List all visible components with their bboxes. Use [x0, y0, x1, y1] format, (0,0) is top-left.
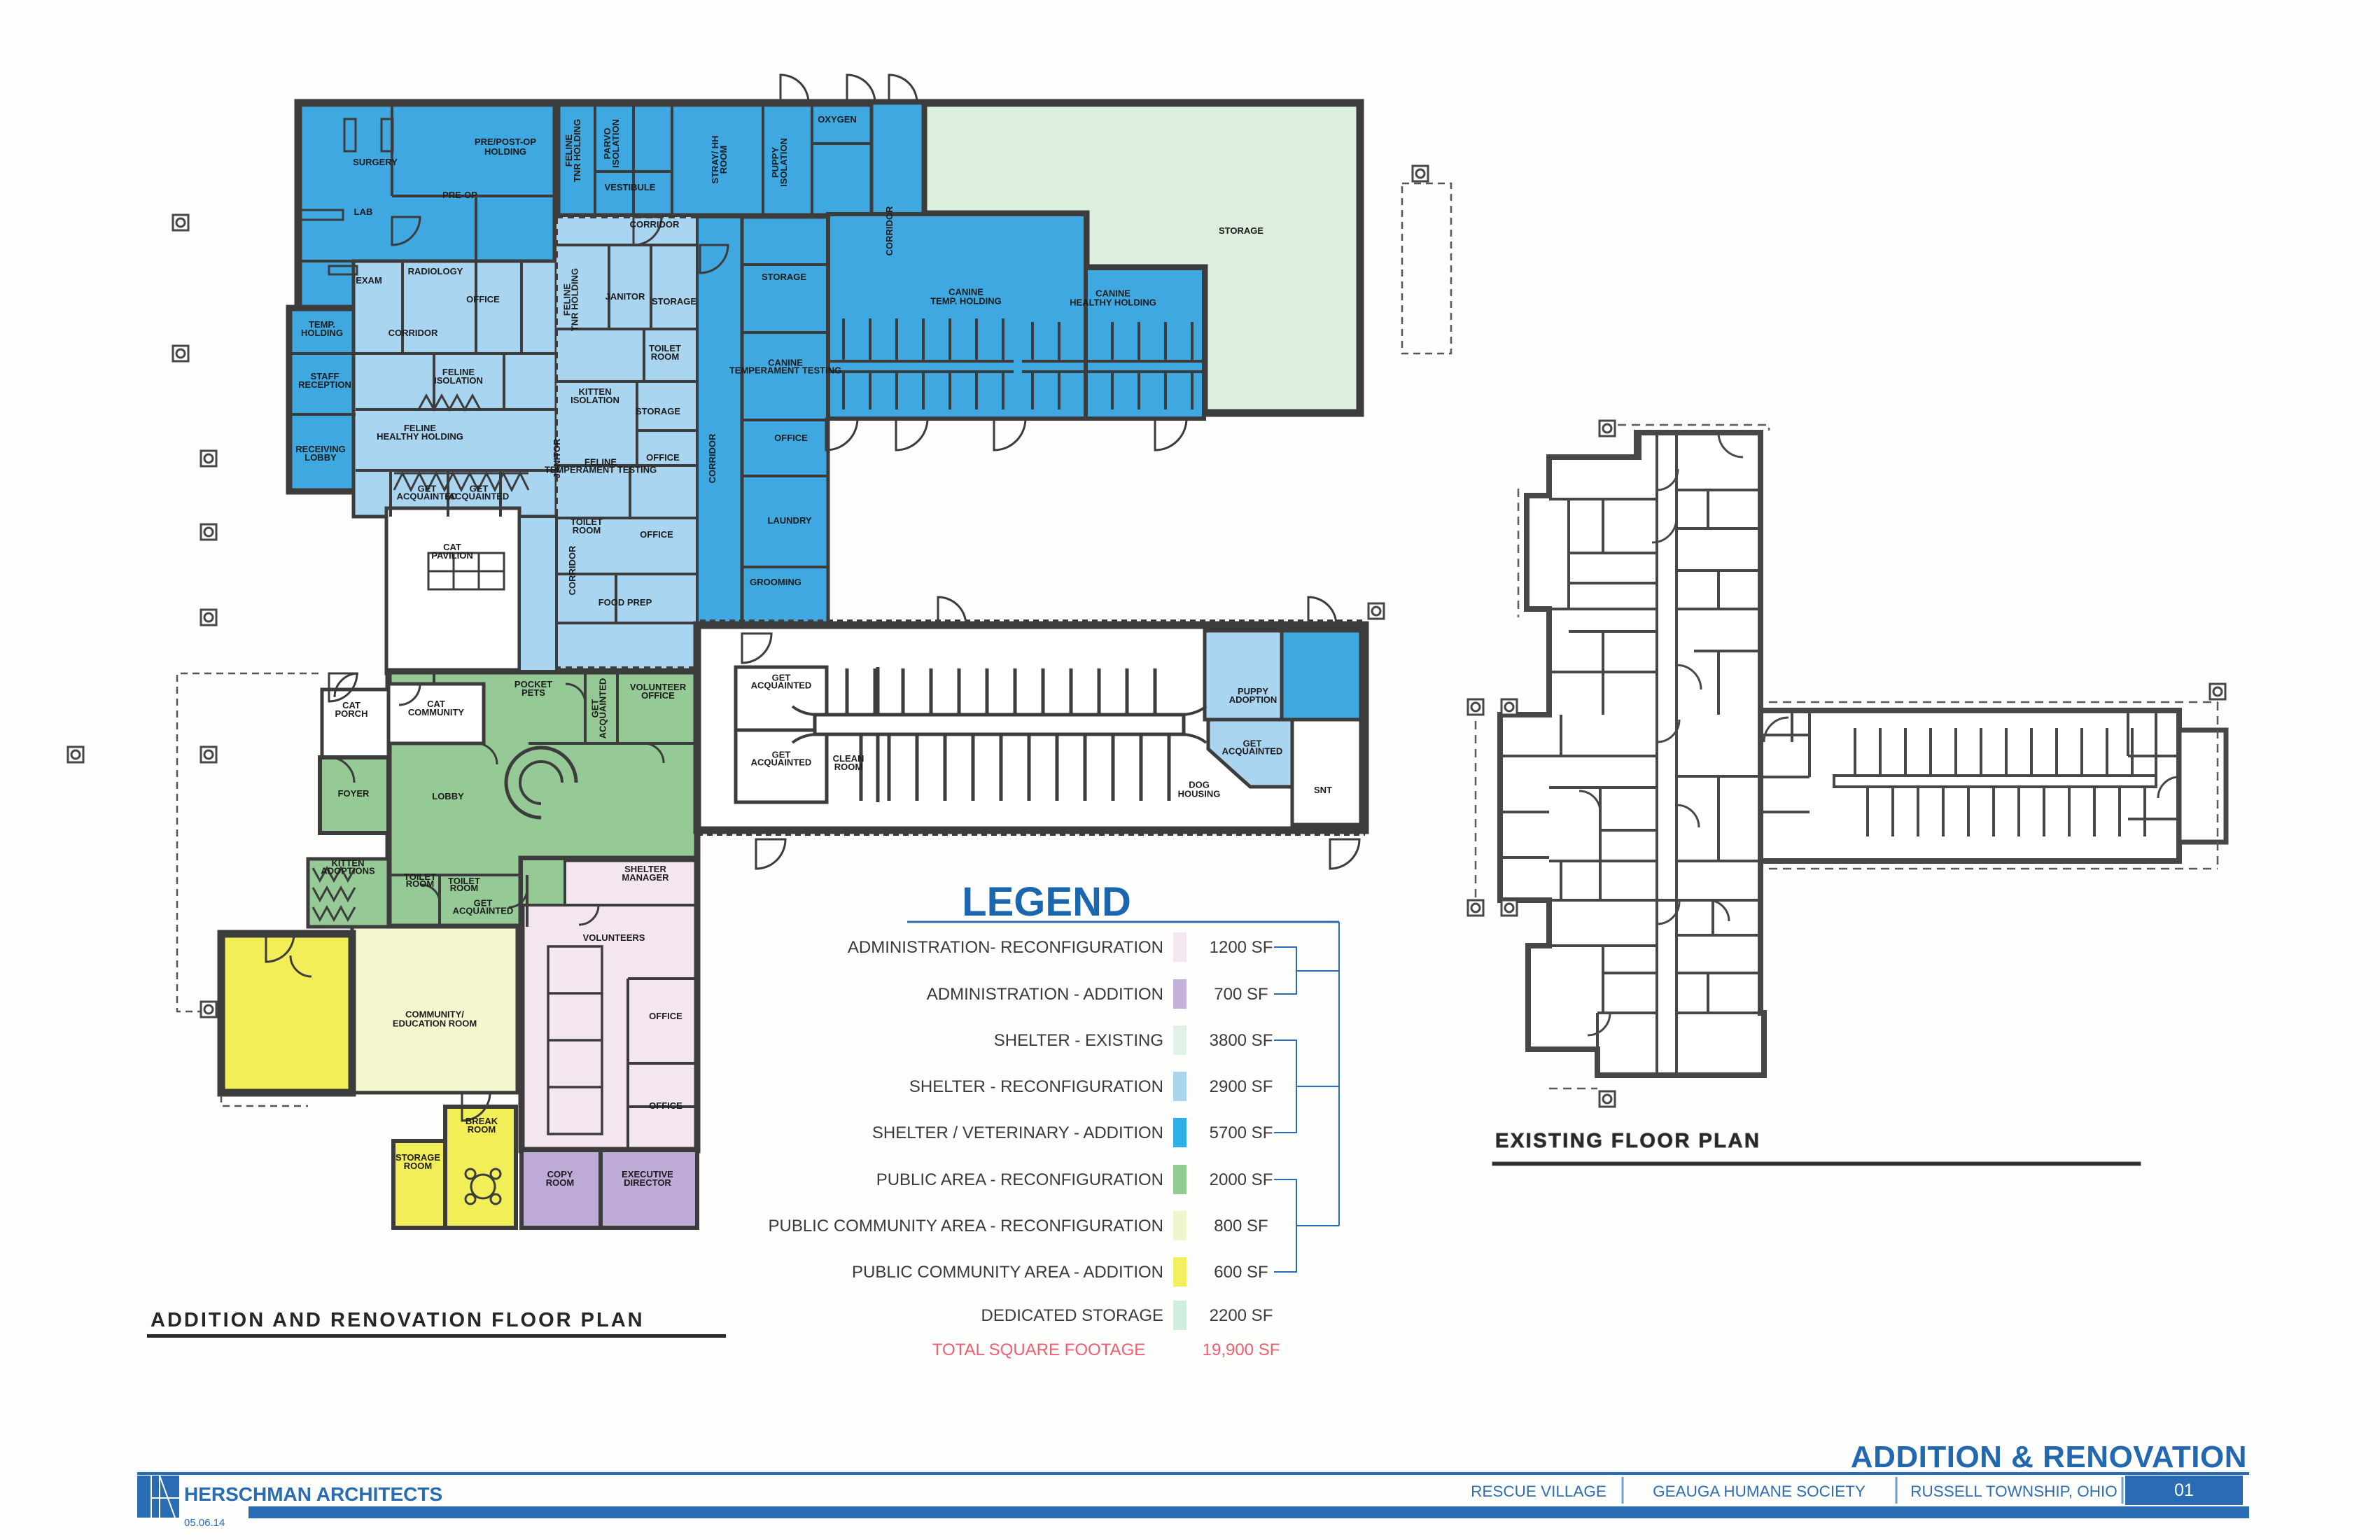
- svg-text:EXAM: EXAM: [356, 275, 382, 286]
- svg-text:STORAGE: STORAGE: [762, 272, 806, 282]
- svg-text:PUBLIC COMMUNITY AREA - RECONF: PUBLIC COMMUNITY AREA - RECONFIGURATION: [768, 1217, 1163, 1235]
- svg-text:STORAGE: STORAGE: [652, 296, 696, 307]
- svg-text:CORRIDOR: CORRIDOR: [567, 545, 577, 595]
- svg-text:LOBBY: LOBBY: [432, 791, 464, 801]
- svg-text:2900 SF: 2900 SF: [1210, 1077, 1273, 1096]
- svg-text:EXECUTIVEDIRECTOR: EXECUTIVEDIRECTOR: [622, 1169, 673, 1188]
- svg-text:JANITOR: JANITOR: [605, 291, 645, 302]
- svg-text:OFFICE: OFFICE: [649, 1011, 682, 1021]
- svg-text:OFFICE: OFFICE: [466, 294, 500, 304]
- svg-text:SHELTER - RECONFIGURATION: SHELTER - RECONFIGURATION: [909, 1077, 1163, 1096]
- svg-text:GEAUGA HUMANE SOCIETY: GEAUGA HUMANE SOCIETY: [1653, 1483, 1865, 1500]
- svg-text:LAB: LAB: [354, 206, 373, 217]
- svg-text:LAUNDRY: LAUNDRY: [767, 515, 811, 526]
- svg-text:OFFICE: OFFICE: [646, 452, 680, 463]
- svg-text:VESTIBULE: VESTIBULE: [605, 182, 656, 192]
- svg-text:800 SF: 800 SF: [1214, 1217, 1268, 1235]
- svg-text:SHELTERMANAGER: SHELTERMANAGER: [622, 864, 669, 883]
- svg-text:PUBLIC COMMUNITY AREA - ADDITI: PUBLIC COMMUNITY AREA - ADDITION: [852, 1263, 1163, 1282]
- svg-text:CORRIDOR: CORRIDOR: [388, 328, 438, 338]
- svg-text:FOYER: FOYER: [338, 788, 370, 799]
- svg-text:600 SF: 600 SF: [1214, 1263, 1268, 1282]
- svg-text:TOILETROOM: TOILETROOM: [570, 517, 603, 535]
- svg-text:3800 SF: 3800 SF: [1210, 1031, 1273, 1050]
- svg-text:SHELTER / VETERINARY - ADDITIO: SHELTER / VETERINARY - ADDITION: [872, 1123, 1163, 1142]
- svg-text:RADIOLOGY: RADIOLOGY: [408, 266, 463, 276]
- svg-text:OFFICE: OFFICE: [640, 529, 673, 540]
- svg-text:01: 01: [2174, 1480, 2194, 1500]
- svg-text:19,900 SF: 19,900 SF: [1203, 1340, 1280, 1359]
- svg-text:CORRIDOR: CORRIDOR: [630, 219, 680, 230]
- svg-text:PRE-OP: PRE-OP: [442, 190, 477, 200]
- svg-text:ADMINISTRATION- RECONFIGURATIO: ADMINISTRATION- RECONFIGURATION: [848, 938, 1163, 957]
- svg-text:OFFICE: OFFICE: [774, 433, 808, 443]
- svg-text:700 SF: 700 SF: [1214, 985, 1268, 1004]
- svg-text:TOILETROOM: TOILETROOM: [448, 876, 480, 893]
- svg-text:TOTAL SQUARE FOOTAGE: TOTAL SQUARE FOOTAGE: [932, 1340, 1146, 1359]
- svg-text:SHELTER - EXISTING: SHELTER - EXISTING: [994, 1031, 1163, 1050]
- svg-text:OFFICE: OFFICE: [649, 1100, 682, 1111]
- svg-text:ADDITION & RENOVATION: ADDITION & RENOVATION: [1851, 1440, 2247, 1474]
- svg-text:GROOMING: GROOMING: [750, 577, 801, 587]
- svg-text:BREAKROOM: BREAKROOM: [465, 1116, 498, 1135]
- svg-text:SNT: SNT: [1314, 785, 1332, 795]
- svg-text:2200 SF: 2200 SF: [1210, 1306, 1273, 1325]
- svg-text:TOILETROOM: TOILETROOM: [649, 343, 681, 362]
- svg-text:LEGEND: LEGEND: [962, 879, 1131, 925]
- svg-text:PUBLIC AREA - RECONFIGURATION: PUBLIC AREA - RECONFIGURATION: [876, 1170, 1163, 1189]
- svg-text:RUSSELL TOWNSHIP, OHIO: RUSSELL TOWNSHIP, OHIO: [1910, 1483, 2117, 1500]
- svg-text:ADDITION AND RENOVATION FLOOR: ADDITION AND RENOVATION FLOOR PLAN: [150, 1309, 645, 1331]
- svg-text:OXYGEN: OXYGEN: [818, 114, 857, 125]
- svg-text:STORAGE: STORAGE: [636, 406, 680, 416]
- svg-text:VOLUNTEERS: VOLUNTEERS: [583, 932, 645, 943]
- svg-text:1200 SF: 1200 SF: [1210, 938, 1273, 957]
- svg-text:ADMINISTRATION - ADDITION: ADMINISTRATION - ADDITION: [927, 985, 1163, 1004]
- svg-text:05.06.14: 05.06.14: [184, 1517, 225, 1529]
- svg-text:CORRIDOR: CORRIDOR: [884, 206, 895, 255]
- svg-text:TOILETROOM: TOILETROOM: [404, 871, 436, 889]
- svg-text:STORAGE: STORAGE: [1219, 225, 1263, 236]
- svg-text:DEDICATED STORAGE: DEDICATED STORAGE: [981, 1306, 1163, 1325]
- svg-text:SURGERY: SURGERY: [353, 157, 398, 167]
- svg-text:2000 SF: 2000 SF: [1210, 1170, 1273, 1189]
- svg-text:FOOD PREP: FOOD PREP: [598, 597, 652, 608]
- svg-text:5700 SF: 5700 SF: [1210, 1123, 1273, 1142]
- svg-text:CLEANROOM: CLEANROOM: [833, 753, 864, 772]
- svg-text:RESCUE VILLAGE: RESCUE VILLAGE: [1471, 1483, 1606, 1500]
- svg-text:COPYROOM: COPYROOM: [546, 1169, 574, 1188]
- svg-text:EXISTING FLOOR PLAN: EXISTING FLOOR PLAN: [1495, 1130, 1760, 1152]
- svg-text:HERSCHMAN ARCHITECTS: HERSCHMAN ARCHITECTS: [184, 1483, 442, 1505]
- svg-text:CORRIDOR: CORRIDOR: [707, 433, 717, 483]
